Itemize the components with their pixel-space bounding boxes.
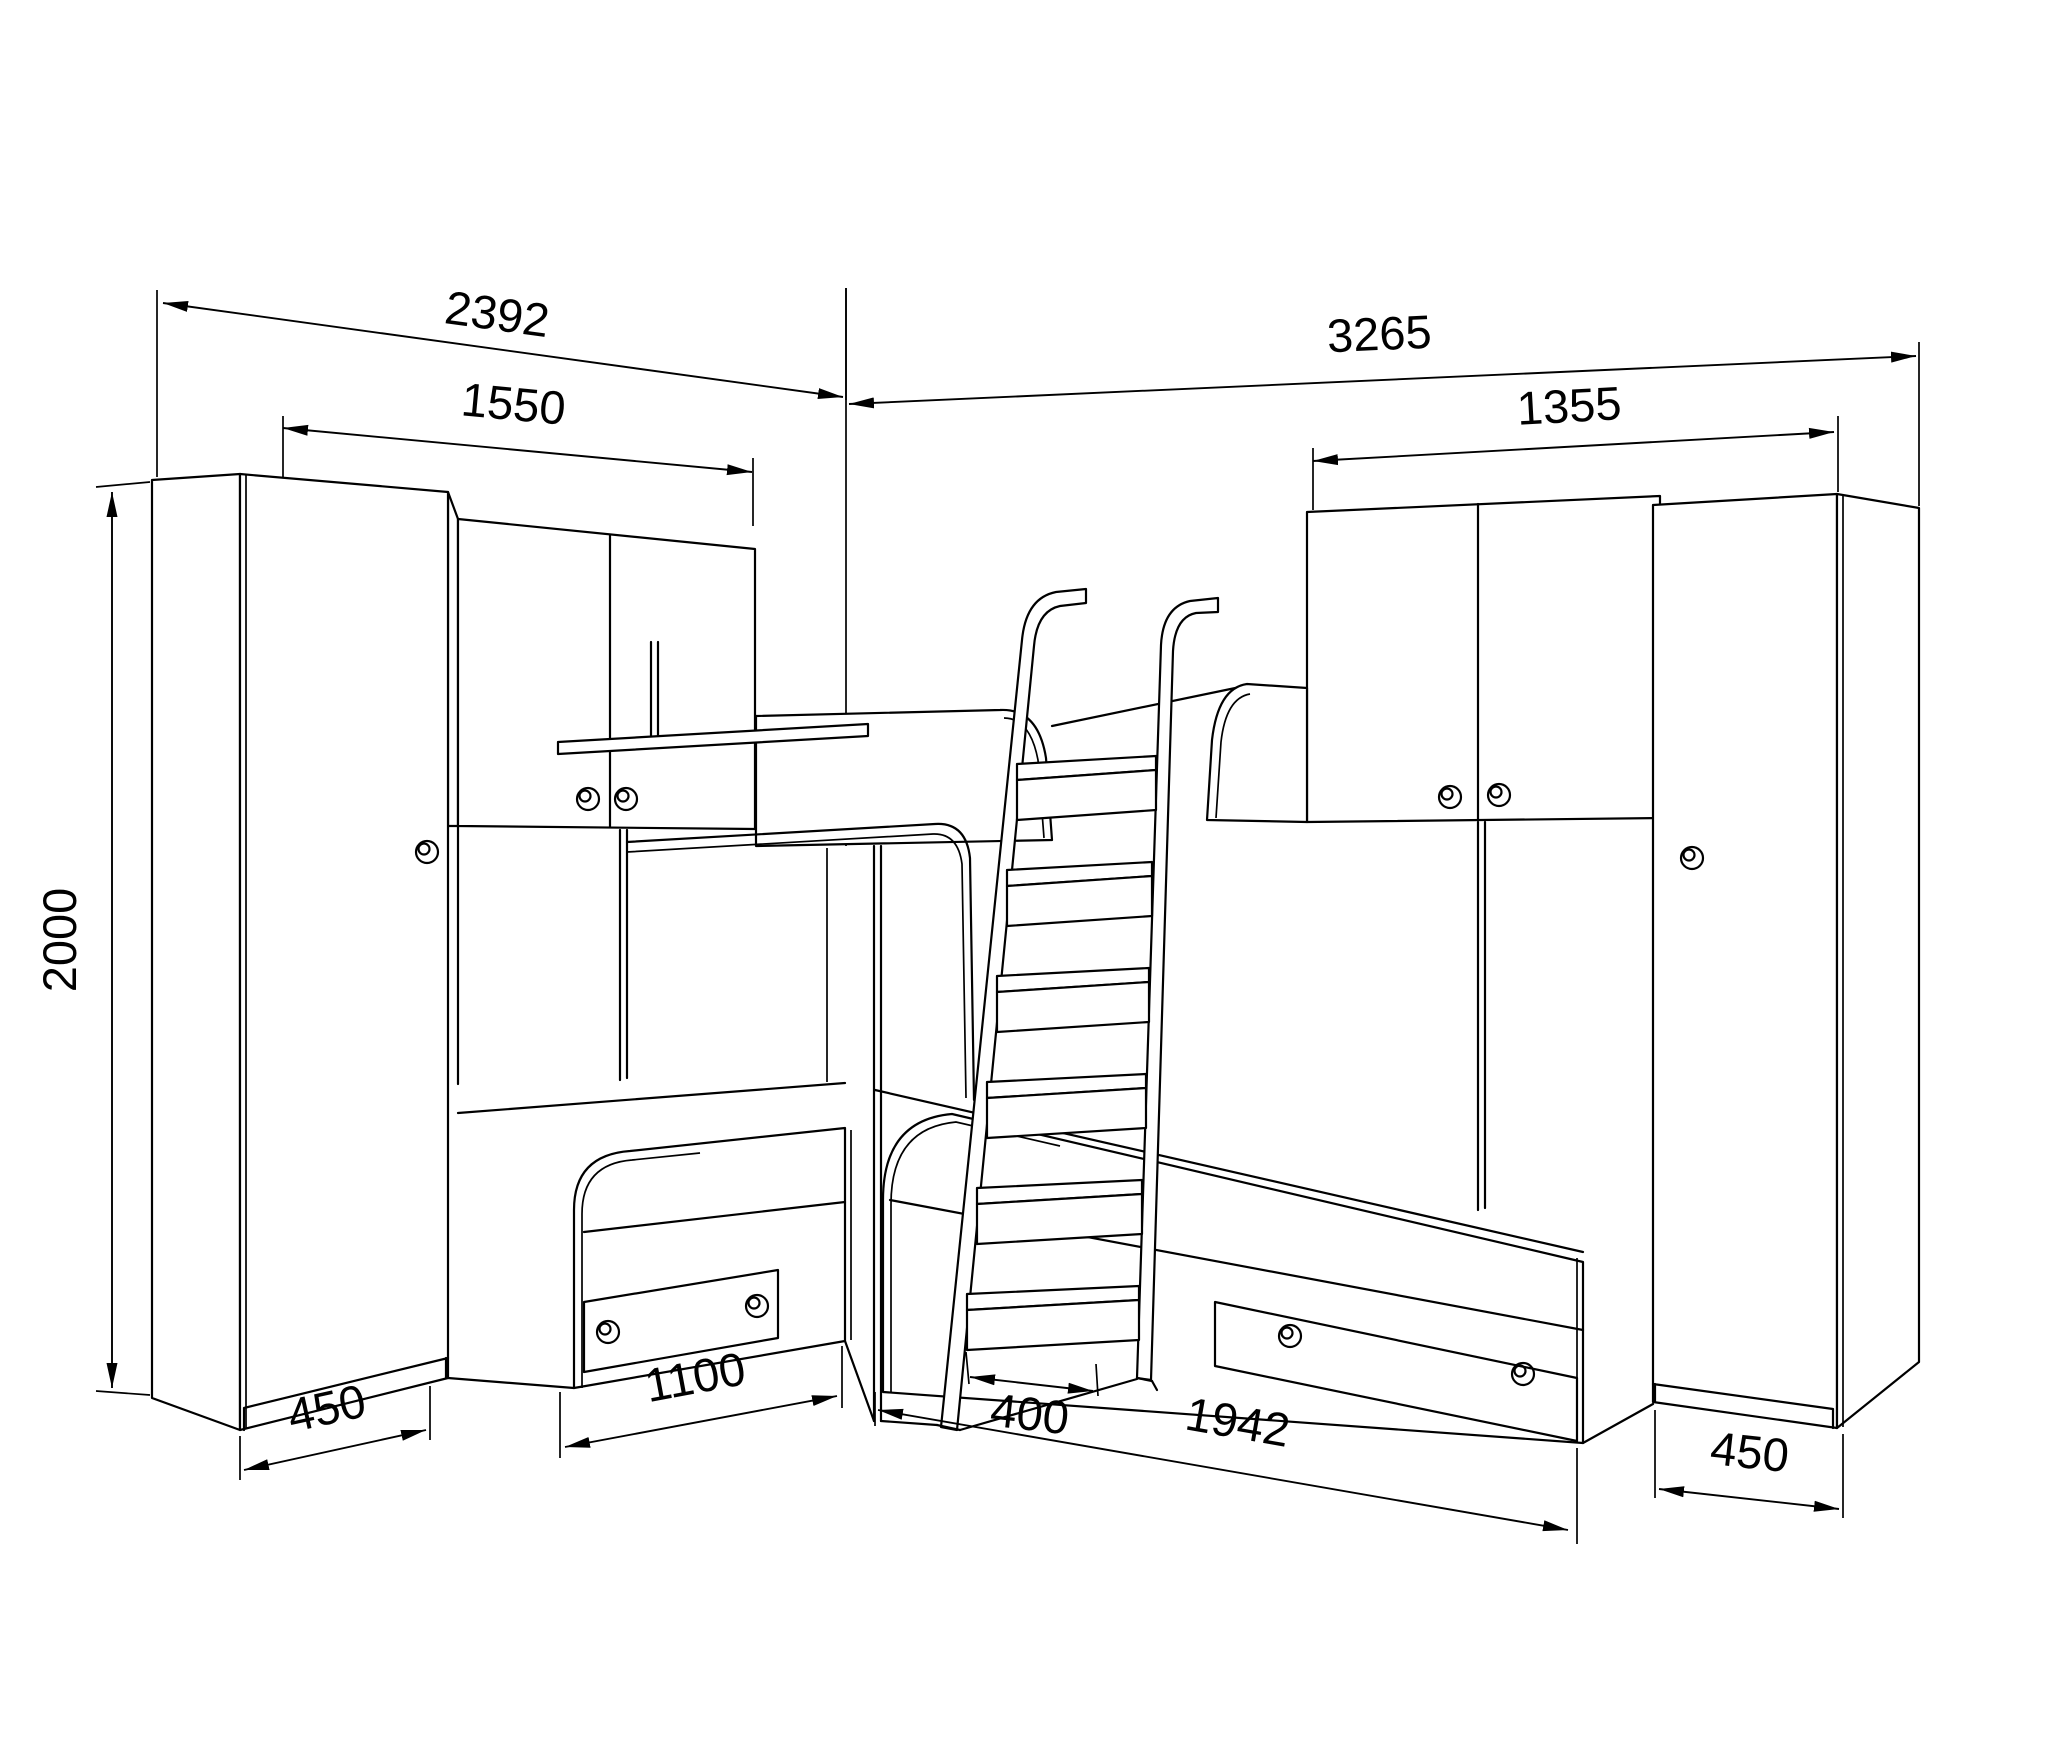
dim-label-right-cabinets-width: 1355 (1515, 376, 1622, 435)
corner-post (874, 846, 881, 1421)
left-niche-divider (620, 830, 627, 1080)
left-bed (458, 1083, 851, 1388)
corner-back-edge (827, 288, 846, 1082)
left-wardrobe (152, 474, 448, 1430)
left-bed-backrest (458, 1083, 845, 1113)
ladder-step (1017, 756, 1156, 820)
dim-label-right-wall-total: 3265 (1326, 305, 1433, 363)
ladder-step (987, 1074, 1146, 1138)
ladder-step (967, 1286, 1139, 1350)
ladder-step (1007, 862, 1152, 926)
dim-label-left-cabinets-width: 1550 (459, 372, 568, 434)
desk-edge (627, 824, 974, 1100)
dim-label-height: 2000 (33, 888, 86, 993)
corner-bunk-bedroom-set-drawing: 2392 3265 1550 1355 2000 450 1100 (0, 0, 2048, 1757)
right-wardrobe-door (1653, 494, 1837, 1428)
right-overhead-cabinet (1307, 496, 1660, 822)
dimension-1355: 1355 (1313, 376, 1838, 510)
dimension-3265: 3265 (849, 305, 1919, 506)
right-cabinet-front (1307, 496, 1660, 822)
left-cabinet-side-panel (448, 492, 458, 826)
left-cabinet-front (458, 519, 755, 829)
left-wardrobe-side (152, 474, 240, 1430)
dim-label-ladder-width: 400 (988, 1383, 1072, 1445)
dim-label-right-wardrobe-depth: 450 (1708, 1421, 1792, 1482)
left-overhead-cabinet (448, 492, 755, 829)
left-wardrobe-door (240, 474, 448, 1430)
bunk-right-board (1207, 684, 1307, 822)
dimension-450-right: 450 (1655, 1410, 1843, 1518)
dimension-2000: 2000 (33, 482, 150, 1395)
right-wardrobe-side (1837, 494, 1919, 1428)
dim-label-left-wall-total: 2392 (442, 280, 553, 347)
right-wardrobe (1653, 494, 1919, 1428)
technical-drawing-page: 2392 3265 1550 1355 2000 450 1100 (0, 0, 2048, 1757)
ladder-step (997, 968, 1149, 1032)
right-niche-divider (1478, 822, 1485, 1210)
ladder-step (977, 1180, 1142, 1244)
